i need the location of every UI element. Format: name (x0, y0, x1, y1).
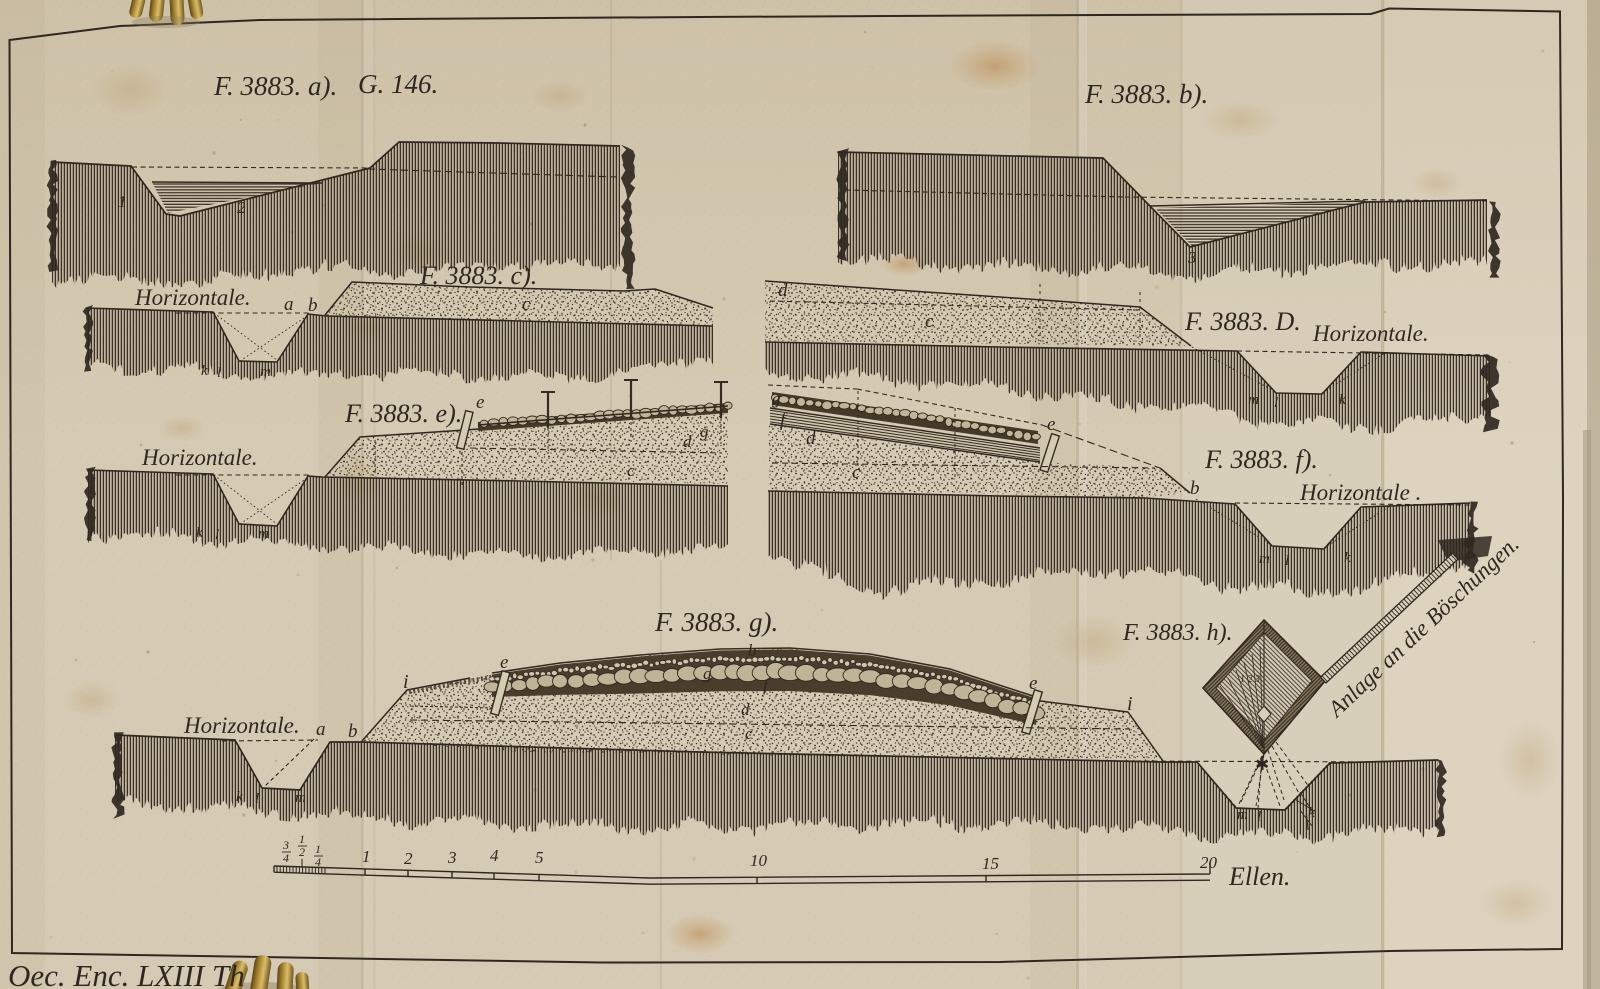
svg-text:4: 4 (490, 846, 499, 865)
svg-text:e: e (476, 392, 484, 413)
svg-text:k: k (236, 789, 243, 805)
svg-text:b: b (348, 721, 358, 742)
svg-text:d: d (778, 280, 788, 301)
svg-text:l: l (1274, 395, 1278, 411)
svg-text:1: 1 (315, 842, 321, 856)
svg-text:k: k (1339, 392, 1346, 408)
svg-text:F. 3883. b).: F. 3883. b). (1084, 79, 1208, 109)
svg-text:k: k (196, 525, 203, 541)
svg-text:Horizontale.: Horizontale. (141, 445, 258, 470)
svg-text:F. 3883. g).: F. 3883. g). (654, 607, 778, 637)
svg-text:F. 3883. h).: F. 3883. h). (1122, 620, 1233, 646)
svg-text:m: m (1248, 392, 1259, 408)
svg-text:F. 3883. a).: F. 3883. a). (213, 71, 337, 101)
svg-text:b: b (1190, 478, 1200, 499)
svg-text:l: l (1257, 809, 1261, 825)
svg-text:G. 146.: G. 146. (358, 69, 438, 99)
svg-text:3: 3 (1187, 248, 1197, 267)
svg-text:3: 3 (447, 848, 457, 867)
svg-text:c: c (852, 462, 861, 483)
svg-text:Ellen.: Ellen. (1228, 862, 1290, 891)
svg-text:e: e (1029, 673, 1037, 694)
svg-text:g: g (703, 664, 712, 683)
svg-text:k: k (1308, 805, 1315, 821)
svg-text:m: m (260, 364, 271, 380)
svg-text:1: 1 (362, 847, 371, 866)
svg-text:d: d (806, 428, 816, 449)
svg-text:g: g (700, 422, 709, 441)
svg-text:F. 3883. D.: F. 3883. D. (1184, 307, 1301, 336)
svg-text:c: c (522, 294, 531, 315)
svg-text:m: m (295, 790, 306, 806)
svg-text:i: i (403, 671, 409, 693)
svg-text:m: m (258, 526, 269, 542)
svg-text:4: 4 (283, 851, 289, 865)
svg-text:20: 20 (1200, 853, 1218, 872)
svg-text:l: l (215, 527, 219, 543)
svg-text:g: g (772, 389, 781, 408)
svg-text:l: l (217, 365, 221, 381)
svg-text:15: 15 (982, 854, 999, 873)
svg-text:F. 3883. f).: F. 3883. f). (1204, 445, 1318, 474)
svg-text:2: 2 (299, 845, 305, 859)
svg-text:c: c (925, 311, 934, 332)
svg-text:Horizontale .: Horizontale . (1299, 480, 1421, 505)
svg-text:d: d (741, 700, 750, 719)
svg-text:k: k (201, 363, 208, 379)
svg-text:m: m (1259, 551, 1270, 567)
svg-text:Horizontale.: Horizontale. (1312, 321, 1429, 346)
svg-text:d: d (683, 432, 692, 451)
svg-text:10: 10 (750, 851, 768, 870)
svg-text:5: 5 (535, 848, 544, 867)
svg-text:1: 1 (118, 192, 127, 211)
svg-text:Oec. Enc. LXIII Th: Oec. Enc. LXIII Th (8, 958, 245, 989)
svg-text:1 2 3: 1 2 3 (1240, 674, 1260, 685)
svg-text:3: 3 (282, 838, 289, 852)
svg-text:l: l (255, 791, 259, 807)
svg-text:2: 2 (237, 198, 246, 217)
svg-text:2: 2 (404, 849, 413, 868)
svg-text:b: b (748, 641, 757, 660)
svg-text:b: b (308, 295, 318, 316)
svg-text:e: e (500, 652, 508, 673)
svg-text:i: i (1127, 693, 1133, 715)
svg-text:1: 1 (299, 832, 305, 846)
svg-text:a: a (284, 294, 294, 315)
svg-text:c: c (745, 724, 753, 743)
svg-text:4: 4 (315, 855, 321, 869)
svg-text:Horizontale.: Horizontale. (183, 713, 300, 738)
svg-text:k: k (1344, 550, 1351, 566)
svg-text:m: m (1237, 807, 1248, 823)
svg-text:c: c (627, 461, 635, 480)
svg-text:l: l (1285, 553, 1289, 569)
svg-text:e: e (1047, 414, 1055, 435)
svg-text:a: a (316, 719, 326, 740)
svg-text:F. 3883. e).: F. 3883. e). (344, 399, 462, 428)
svg-text:Horizontale.: Horizontale. (134, 285, 251, 310)
